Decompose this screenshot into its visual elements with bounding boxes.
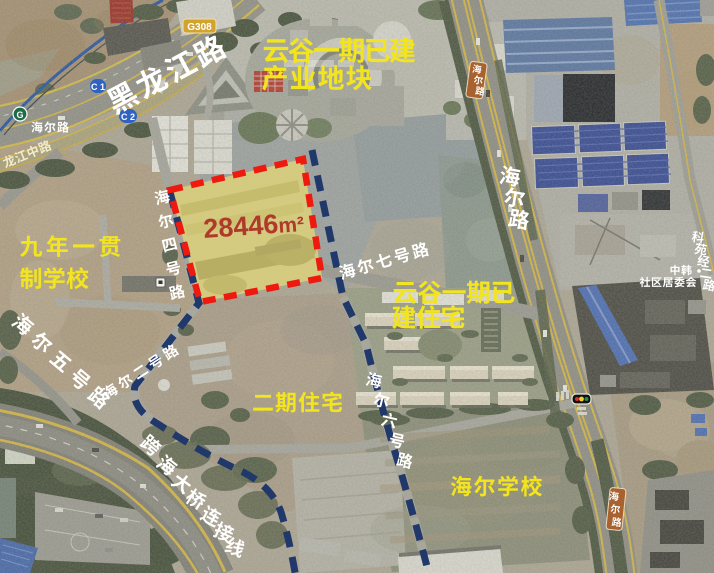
svg-text:C 2: C 2 (121, 112, 135, 122)
svg-text:G308: G308 (187, 22, 212, 33)
svg-text:C 1: C 1 (91, 82, 105, 92)
svg-text:G: G (16, 110, 23, 120)
